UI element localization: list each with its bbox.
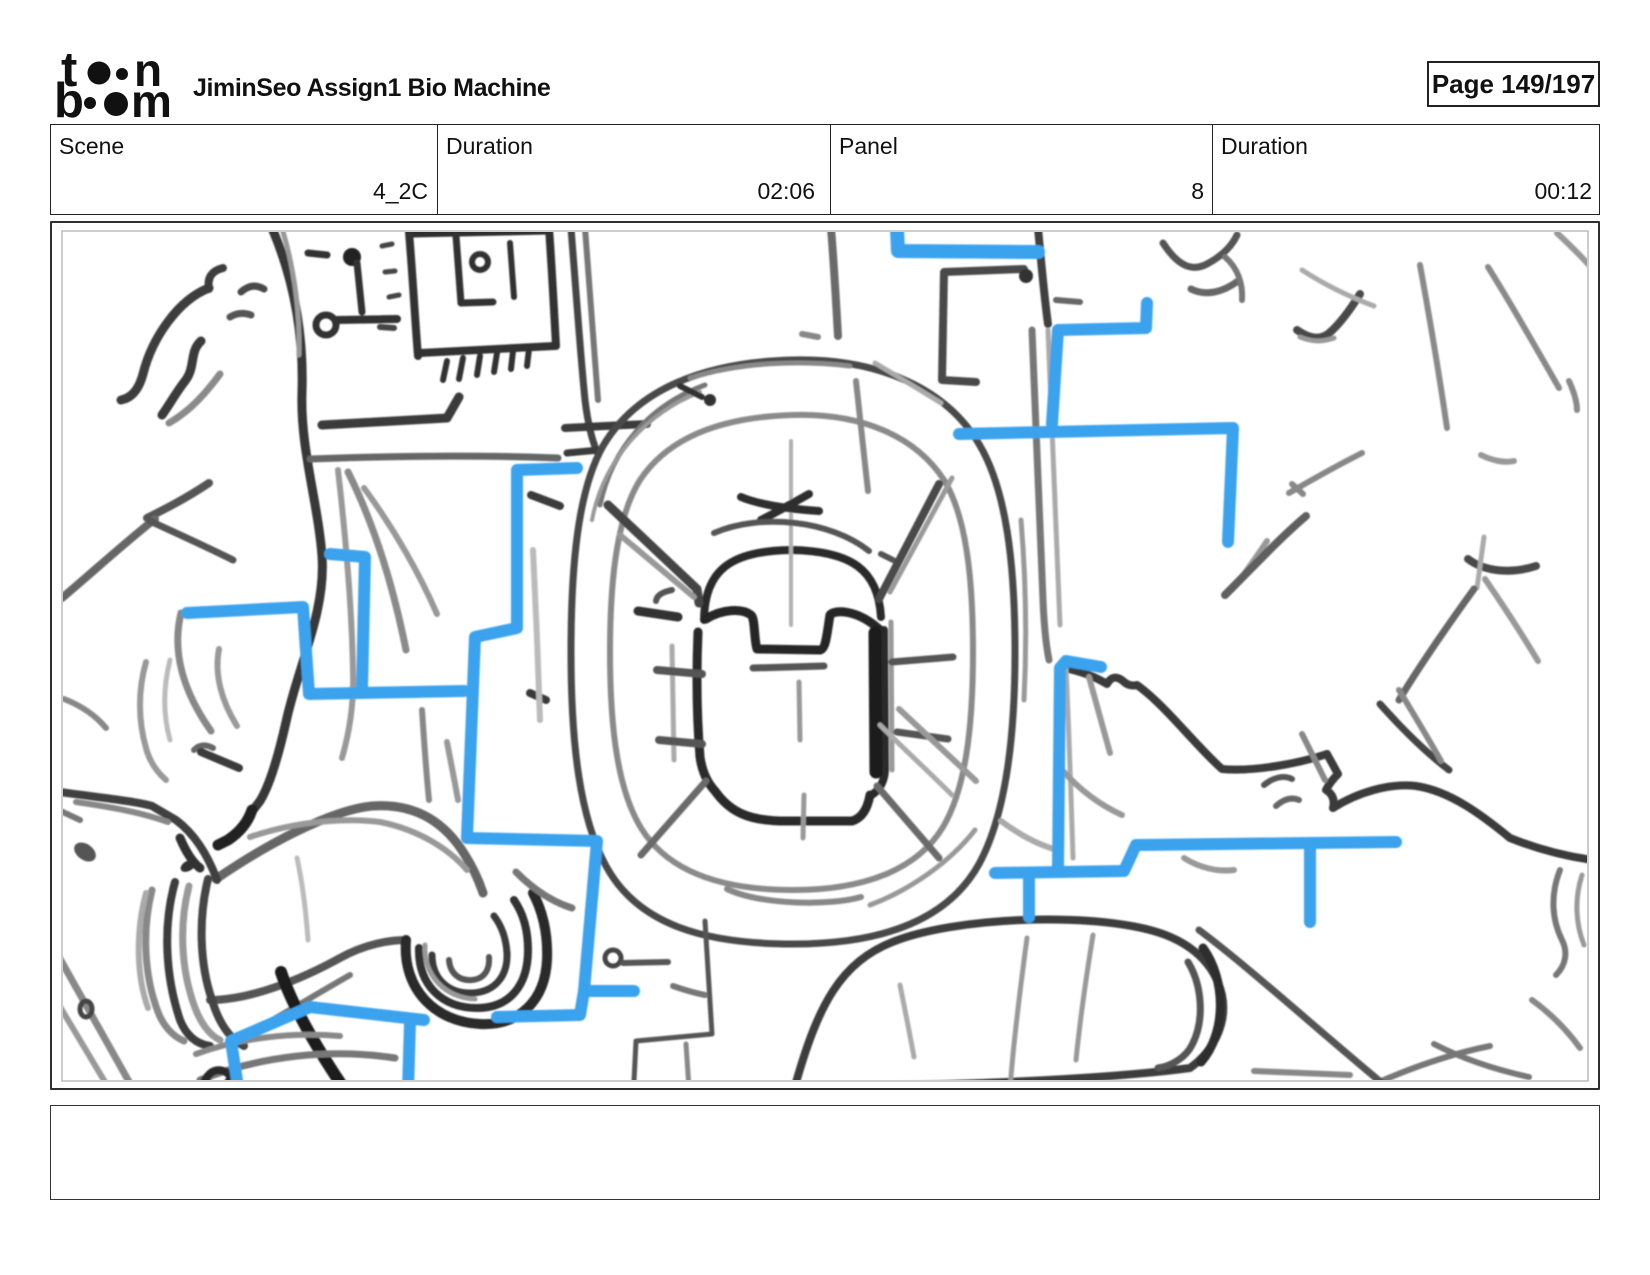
svg-text:m: m: [131, 75, 172, 122]
svg-text:b: b: [54, 74, 84, 122]
